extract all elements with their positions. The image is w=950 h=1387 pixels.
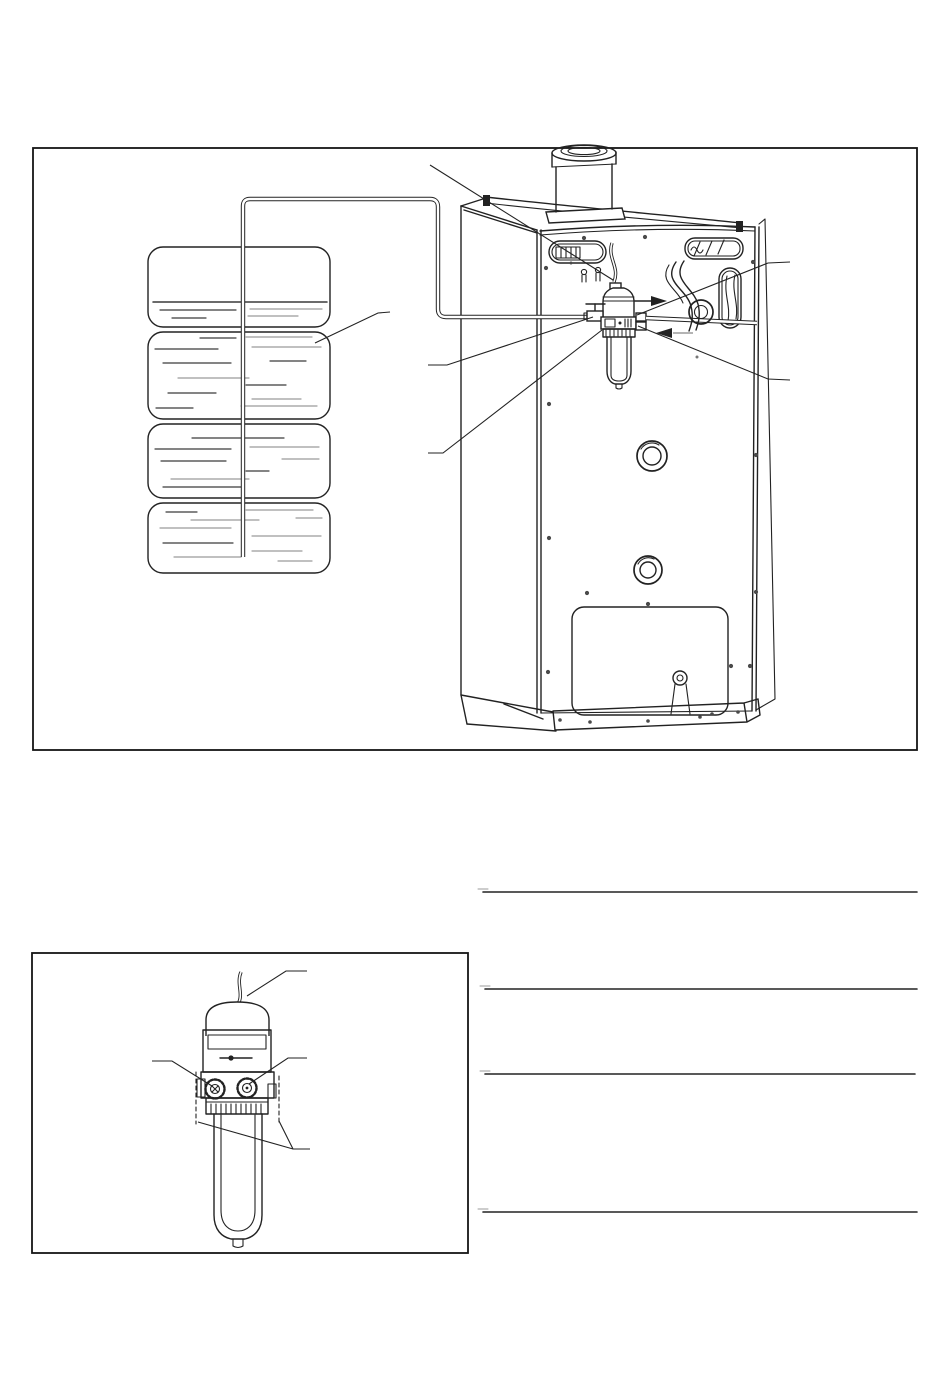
filter-detail-drawing: [196, 972, 279, 1248]
leader-shutoff-valve: [428, 317, 593, 365]
base-plate: [461, 695, 760, 731]
back-panel-bottom-edge: [541, 711, 752, 713]
figure-filter-detail: [32, 953, 468, 1253]
filter-bowl: [214, 1114, 262, 1248]
handle-recess-right: [685, 238, 743, 259]
leader-outlet-fitting: [249, 1058, 307, 1084]
panel-screws: [544, 235, 758, 724]
deaerator-dome: [206, 1002, 269, 1036]
figure-oil-line-overview: [33, 145, 917, 750]
collar-ring: [206, 1098, 268, 1114]
flow-arrow-left: [656, 328, 693, 338]
deaerator-dome: [603, 288, 634, 318]
boiler-top-left-edge: [461, 198, 486, 206]
page-artwork: [0, 0, 950, 1387]
boiler-left-slope: [461, 206, 537, 233]
handle-recess-left: [549, 241, 606, 263]
back-panel-left-edge: [537, 230, 541, 713]
leader-filter-unit: [428, 330, 602, 453]
leader-filter-bowl-right: [279, 1121, 293, 1149]
outlet-fitting-upper: [636, 313, 646, 321]
tank-oil-level-dashes: [153, 302, 327, 561]
bleed-indicator: [228, 1055, 233, 1060]
side-slot: [719, 268, 741, 328]
panel-studs: [581, 267, 600, 282]
manual-page: [0, 0, 950, 1387]
filter-bowl: [607, 337, 631, 389]
pipe-grommet-upper: [637, 441, 667, 471]
boiler: [461, 145, 775, 731]
leader-oil-tank: [315, 312, 390, 343]
tank-section-1: [148, 247, 330, 327]
flue-pipe: [546, 145, 625, 223]
back-panel-top-edge-inner: [540, 229, 755, 235]
inlet-fitting: [206, 1080, 225, 1099]
figure2-border: [32, 953, 468, 1253]
back-panel-right-edge: [752, 227, 759, 711]
access-panel: [572, 607, 728, 715]
leader-filter-bowl-left: [198, 1122, 310, 1149]
oil-filter-assembly: [584, 243, 757, 389]
ruled-lines: [478, 889, 917, 1212]
filter-body: [203, 1030, 271, 1072]
tank-section-4: [148, 503, 330, 573]
boiler-left-edge: [461, 206, 467, 724]
leader-sensor-cable: [430, 165, 613, 280]
leader-sensor-cable: [247, 971, 307, 996]
pipe-grommet-lower: [634, 556, 662, 584]
filter-collar-ticks: [606, 330, 630, 336]
oil-tank: [148, 247, 330, 573]
